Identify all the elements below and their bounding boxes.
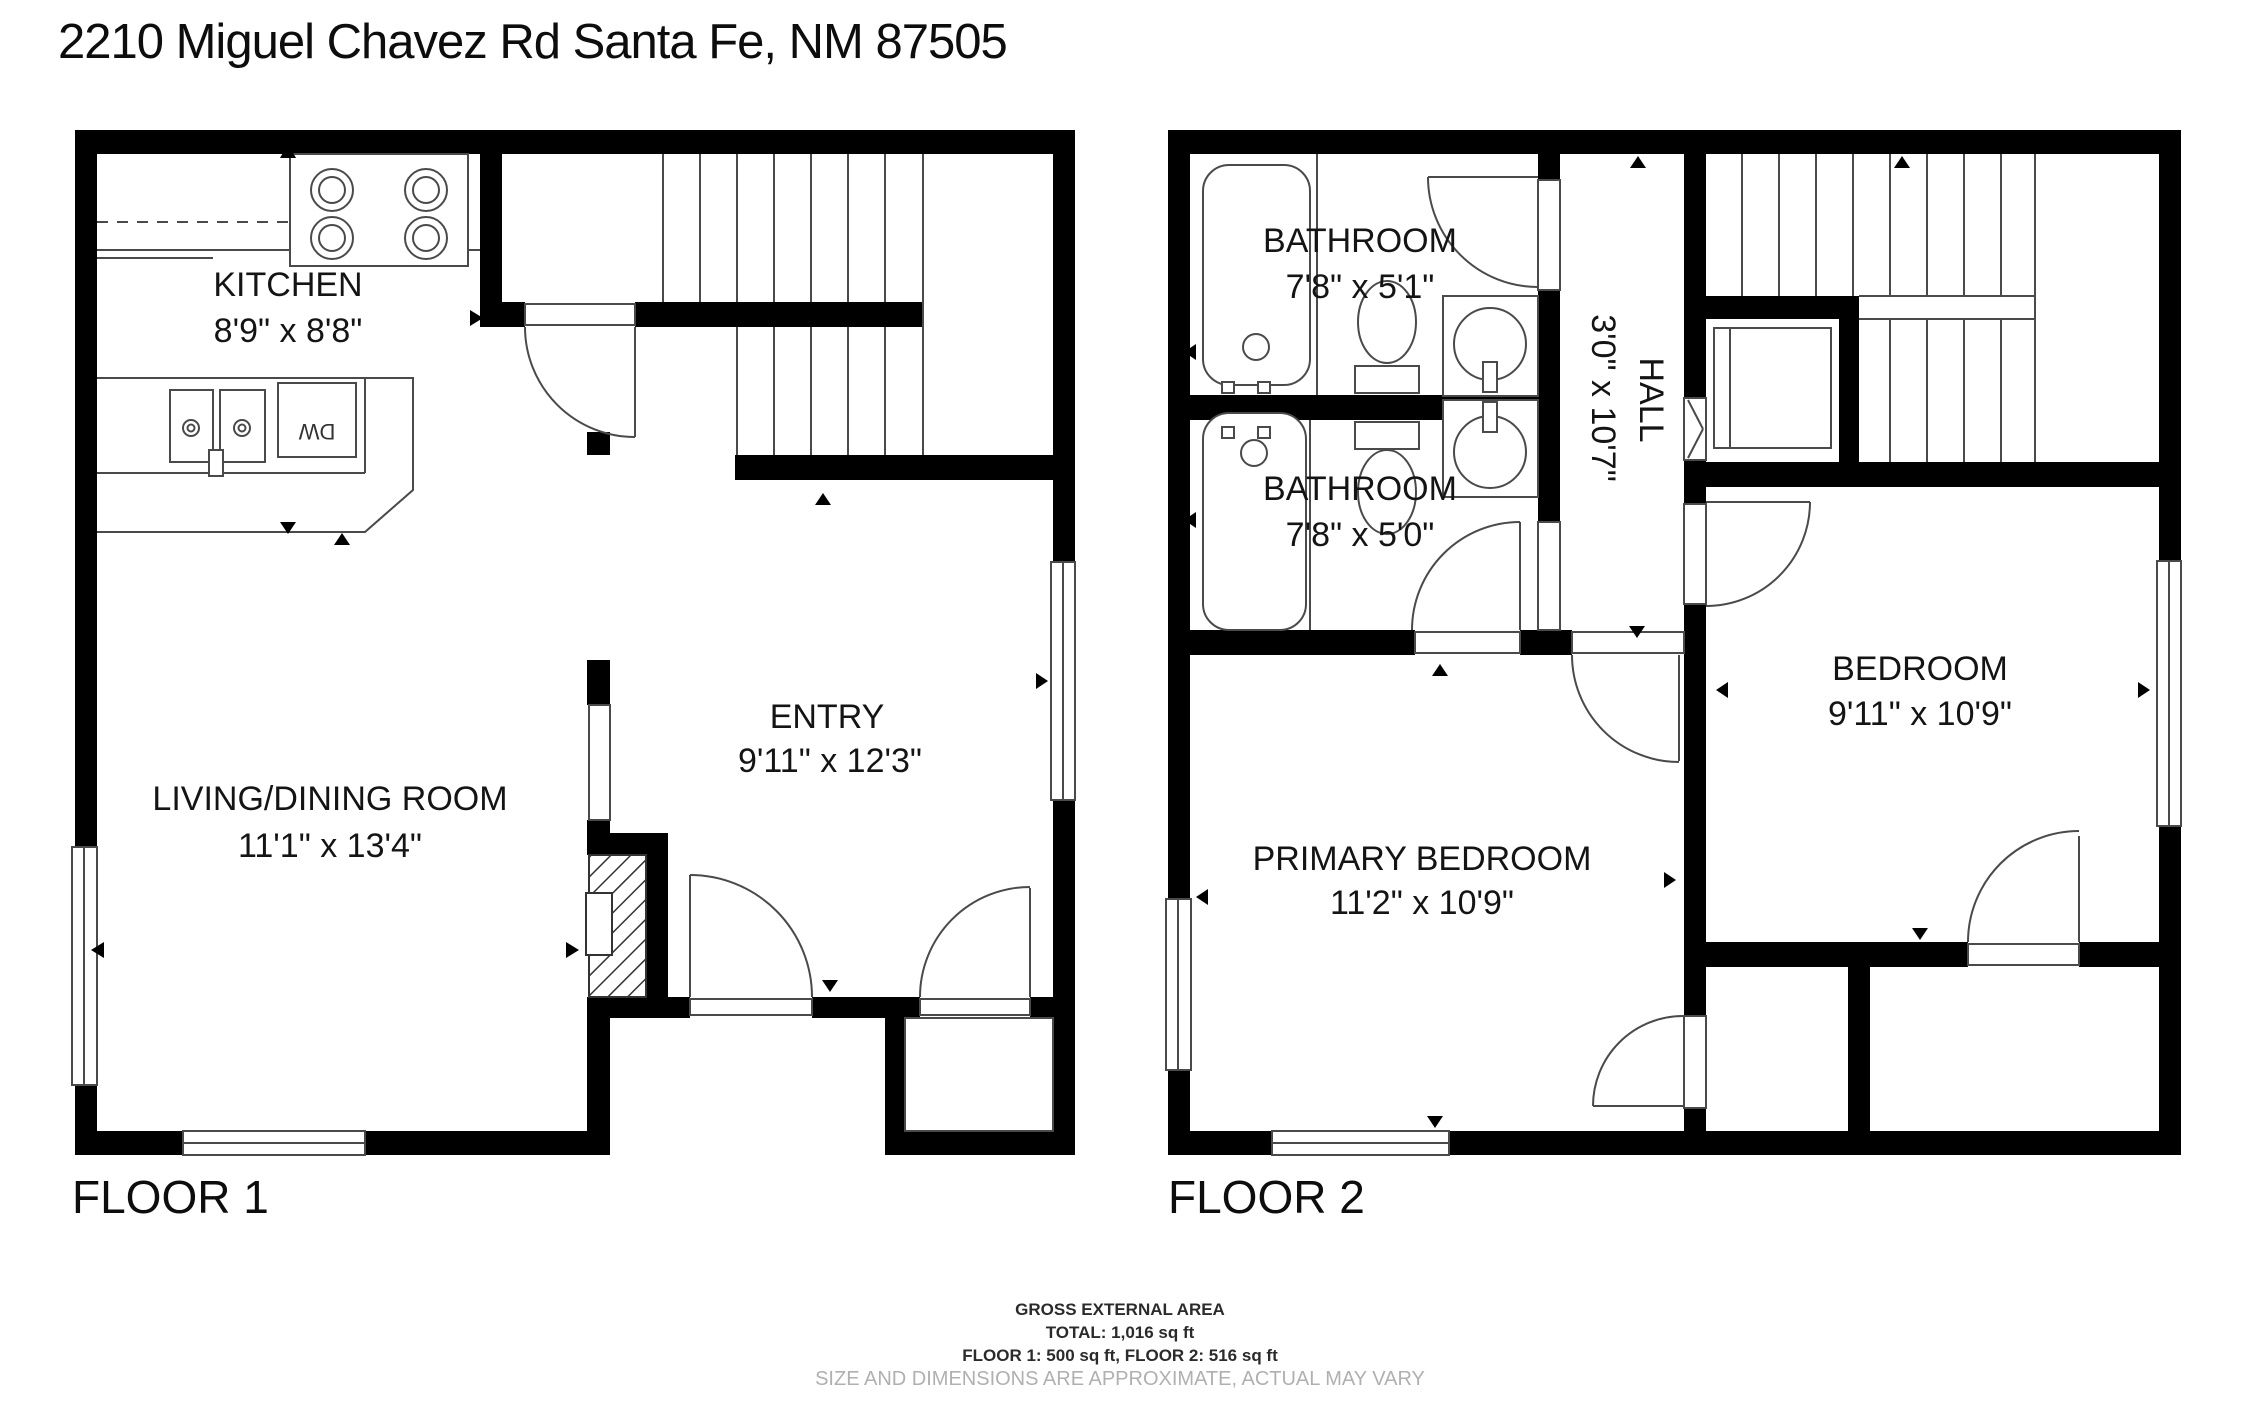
footer-area-summary: GROSS EXTERNAL AREA TOTAL: 1,016 sq ft F… — [815, 1300, 1425, 1390]
bathroom2-label: BATHROOM — [1263, 470, 1457, 508]
primary-bedroom-label: PRIMARY BEDROOM — [1253, 840, 1592, 878]
hall-dims: 3'0" x 10'7" — [1584, 314, 1622, 482]
hall-closet-door — [1684, 328, 1831, 460]
bathroom2-dims: 7'8" x 5'0" — [1286, 516, 1435, 554]
bedroom-label: BEDROOM — [1832, 650, 2008, 688]
entry-label: ENTRY — [770, 698, 885, 736]
page-title: 2210 Miguel Chavez Rd Santa Fe, NM 87505 — [58, 15, 1007, 69]
footer-disclaimer: SIZE AND DIMENSIONS ARE APPROXIMATE, ACT… — [815, 1368, 1425, 1390]
floor1-caption: FLOOR 1 — [72, 1171, 269, 1223]
dishwasher-label: DW — [298, 419, 335, 444]
entry-closet — [905, 1018, 1053, 1131]
bathroom1-label: BATHROOM — [1263, 222, 1457, 260]
living-dims: 11'1" x 13'4" — [238, 827, 422, 865]
fireplace — [586, 855, 646, 997]
understair-closet-door — [525, 304, 635, 437]
primary-bedroom-dims: 11'2" x 10'9" — [1330, 884, 1514, 922]
bedroom-door — [1684, 502, 1810, 606]
footer-line2: TOTAL: 1,016 sq ft — [1046, 1323, 1195, 1342]
footer-line1: GROSS EXTERNAL AREA — [1015, 1300, 1225, 1319]
kitchen-label: KITCHEN — [213, 266, 362, 304]
bathroom2-fixtures — [1203, 400, 1538, 630]
bathroom2-opening — [1415, 632, 1520, 653]
kitchen-dims: 8'9" x 8'8" — [214, 312, 363, 350]
floor1-plan: DW — [72, 130, 1075, 1155]
entry-dims: 9'11" x 12'3" — [738, 742, 922, 780]
cased-opening — [589, 705, 610, 820]
stove — [290, 154, 468, 266]
living-label: LIVING/DINING ROOM — [152, 780, 507, 818]
hall-label: HALL — [1632, 357, 1670, 442]
footer-line3: FLOOR 1: 500 sq ft, FLOOR 2: 516 sq ft — [962, 1346, 1278, 1365]
primary-bedroom-door — [1572, 632, 1684, 762]
bedroom-dims: 9'11" x 10'9" — [1828, 695, 2012, 733]
floor2-plan: BATHROOM 7'8" x 5'1" BATHROOM 7'8" x 5'0… — [1166, 130, 2181, 1155]
floorplan-canvas: 2210 Miguel Chavez Rd Santa Fe, NM 87505 — [0, 0, 2245, 1402]
dishwasher: DW — [278, 383, 356, 457]
floor2-caption: FLOOR 2 — [1168, 1171, 1365, 1223]
front-door — [690, 875, 812, 1015]
primary-closet-door — [1593, 1016, 1706, 1108]
bathroom1-dims: 7'8" x 5'1" — [1286, 268, 1435, 306]
entry-closet-door — [920, 887, 1030, 1015]
bedroom-closet-door — [1968, 831, 2079, 965]
